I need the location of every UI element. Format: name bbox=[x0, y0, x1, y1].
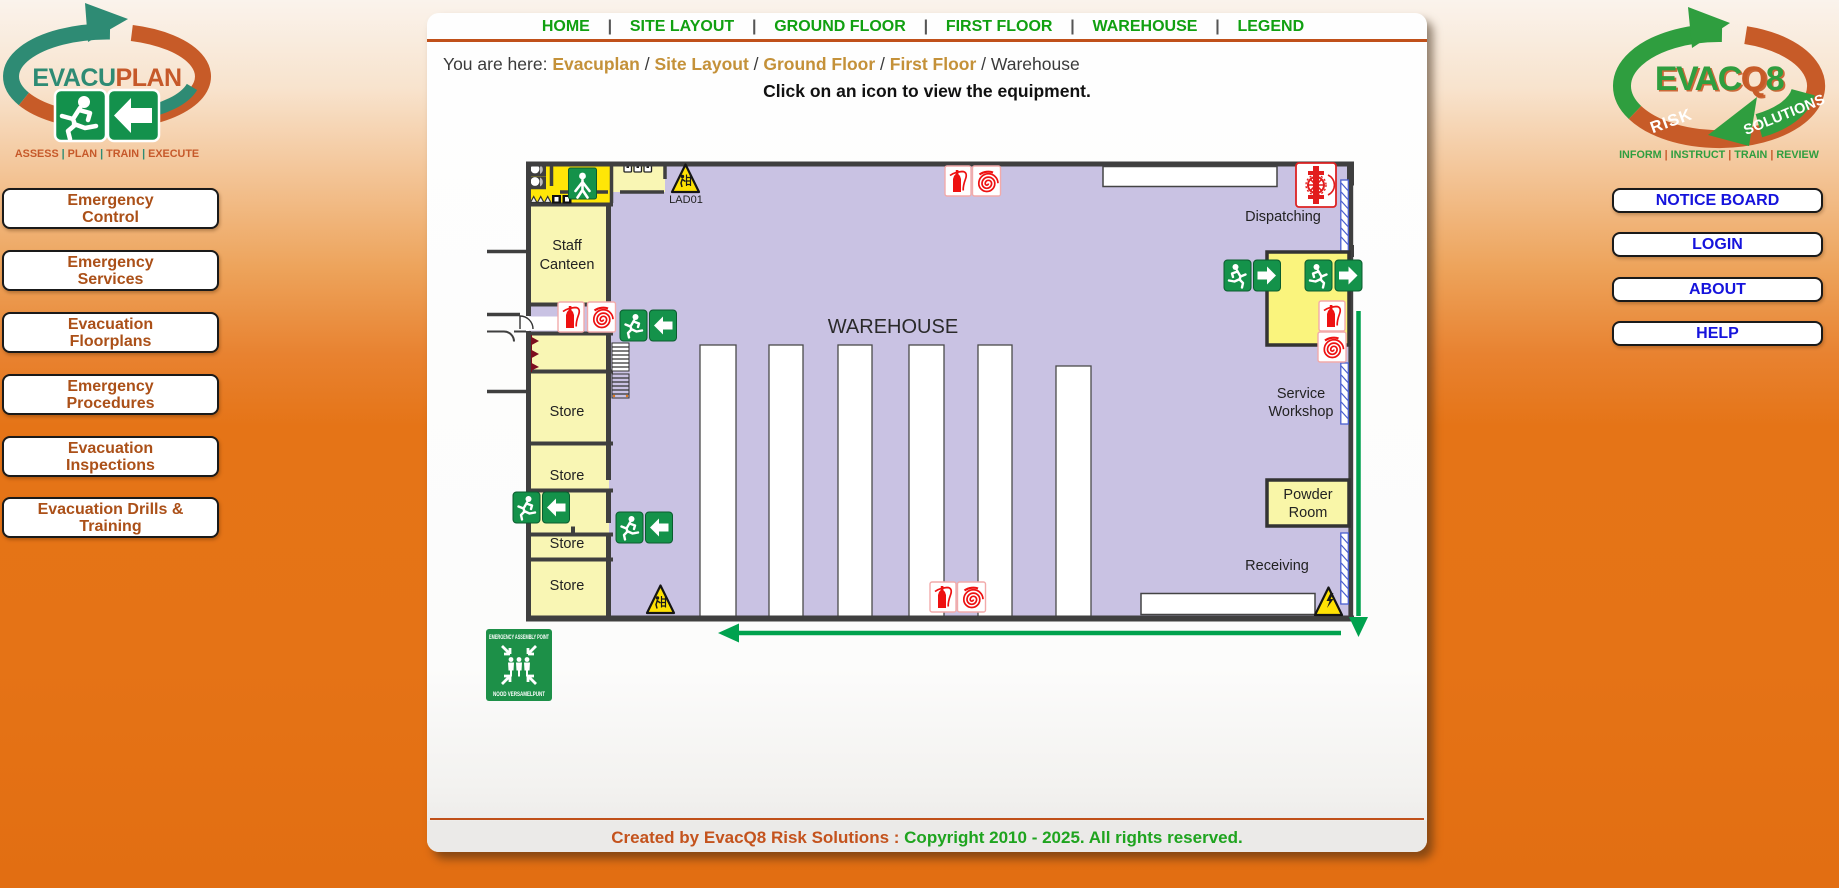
svg-text:EVACUPLAN: EVACUPLAN bbox=[32, 64, 181, 92]
svg-text:Store: Store bbox=[550, 578, 585, 594]
svg-text:Store: Store bbox=[550, 404, 585, 420]
svg-text:ASSESS | PLAN | TRAIN | EXECUT: ASSESS | PLAN | TRAIN | EXECUTE bbox=[15, 148, 199, 160]
svg-text:NOOD VERSAMELPUNT: NOOD VERSAMELPUNT bbox=[493, 692, 545, 698]
svg-text:LAD01: LAD01 bbox=[669, 194, 703, 206]
svg-text:INFORM | INSTRUCT | TRAIN | RE: INFORM | INSTRUCT | TRAIN | REVIEW bbox=[1619, 149, 1820, 161]
svg-text:Room: Room bbox=[1289, 505, 1328, 521]
svg-text:Staff: Staff bbox=[552, 238, 583, 254]
svg-text:Canteen: Canteen bbox=[540, 257, 595, 273]
svg-text:WAREHOUSE: WAREHOUSE bbox=[828, 316, 958, 338]
svg-text:Receiving: Receiving bbox=[1245, 558, 1309, 574]
svg-text:EMERGENCY ASSEMBLY POINT: EMERGENCY ASSEMBLY POINT bbox=[489, 635, 549, 641]
svg-text:EVACQ8: EVACQ8 bbox=[1655, 60, 1784, 98]
svg-text:Dispatching: Dispatching bbox=[1245, 209, 1321, 225]
svg-text:Store: Store bbox=[550, 468, 585, 484]
svg-text:Store: Store bbox=[550, 536, 585, 552]
svg-text:Workshop: Workshop bbox=[1268, 404, 1333, 420]
svg-text:Powder: Powder bbox=[1283, 487, 1332, 503]
svg-text:Service: Service bbox=[1277, 386, 1325, 402]
